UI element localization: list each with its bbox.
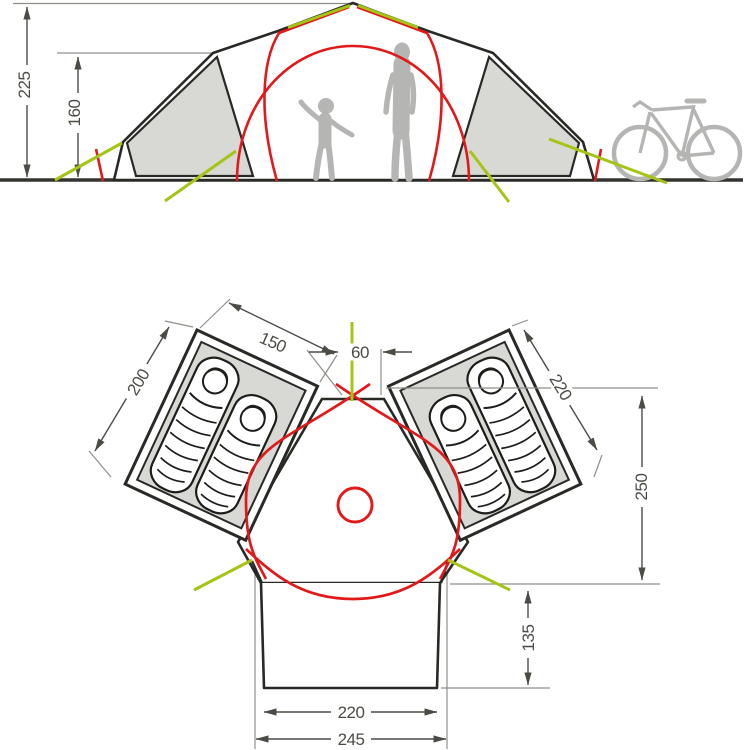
dim-text-porch-outer-width: 245 xyxy=(338,730,365,749)
tent-dimension-diagram: 225 160 150 60 200 220 250 135 xyxy=(0,0,751,750)
bicycle-silhouette xyxy=(614,101,740,179)
label-porch-depth: 135 xyxy=(519,618,538,658)
dim-text-total-height: 225 xyxy=(15,72,34,99)
floorplan-view xyxy=(89,299,660,749)
dim-text-porch-inner-width: 220 xyxy=(338,703,365,722)
plan-guyline-bottom-left xyxy=(194,560,252,590)
guyline-far-left xyxy=(55,143,122,180)
label-right-cabin-depth: 220 xyxy=(542,365,579,409)
pole-tip-right xyxy=(595,149,601,181)
label-inner-height: 160 xyxy=(65,93,84,133)
label-left-cabin-depth: 200 xyxy=(120,360,157,404)
label-main-depth: 250 xyxy=(632,467,651,507)
dim-text-main-depth: 250 xyxy=(632,474,651,501)
dim-text-center-opening: 60 xyxy=(351,343,369,362)
label-total-height: 225 xyxy=(15,65,34,105)
dim-text-inner-height: 160 xyxy=(65,100,84,127)
label-porch-inner-width: 220 xyxy=(331,703,371,722)
plan-guyline-bottom-right xyxy=(448,560,510,590)
label-porch-outer-width: 245 xyxy=(331,730,371,749)
diagram-canvas: 225 160 150 60 200 220 250 135 xyxy=(0,0,751,750)
label-center-opening: 60 xyxy=(346,343,374,362)
label-cabin-width: 150 xyxy=(251,326,295,360)
elevation-view xyxy=(0,3,743,202)
dim-text-porch-depth: 135 xyxy=(519,625,538,652)
